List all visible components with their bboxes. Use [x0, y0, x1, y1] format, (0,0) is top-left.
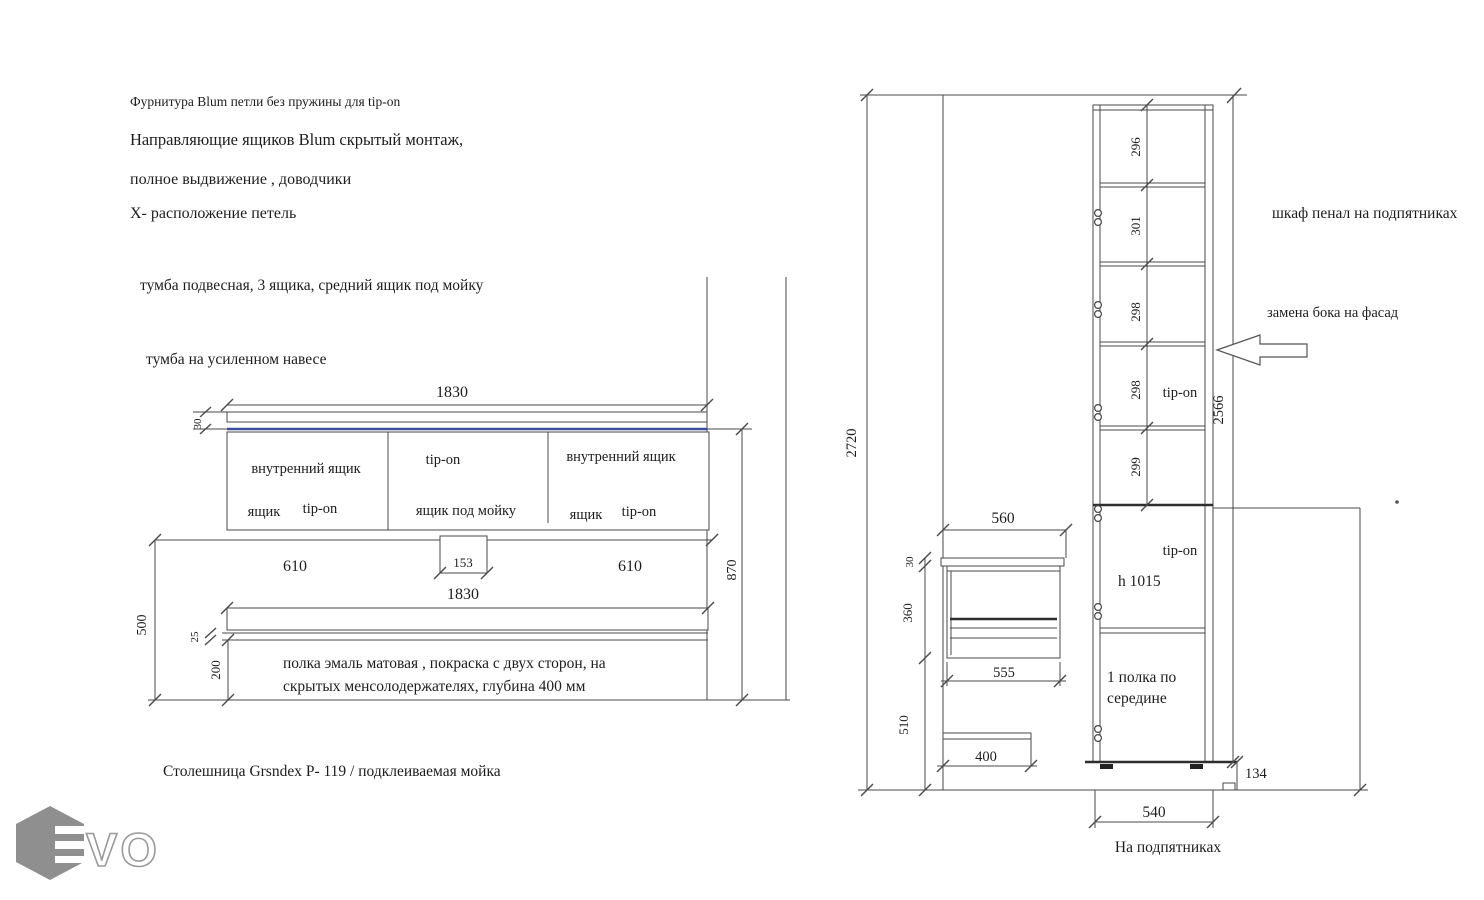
label-tipon-upper: tip-on — [1163, 385, 1198, 401]
left-arrow-icon — [1217, 335, 1307, 365]
dim-section-left: 610 — [283, 558, 307, 575]
note-fullext: полное выдвижение , доводчики — [130, 171, 352, 188]
label-tipon-mid: tip-on — [426, 452, 461, 468]
note-hardware: Фурнитура Blum петли без пружины для tip… — [130, 94, 401, 109]
note-slides: Направляющие ящиков Blum скрытый монтаж, — [130, 130, 463, 149]
dim-total-height: 2720 — [844, 429, 860, 458]
dim-countertop-thickness: 30 — [192, 418, 204, 430]
right-cabinet-title: шкаф пенал на подпятниках — [1272, 205, 1458, 222]
label-tipon-left: tip-on — [303, 501, 338, 517]
dim-section-296: 296 — [1128, 137, 1143, 157]
label-sink-drawer: ящик под мойку — [416, 503, 517, 519]
shelf-front — [227, 608, 708, 630]
upper-unit-top-plate — [941, 558, 1064, 566]
dim-shelf-gap: 200 — [208, 660, 223, 680]
dim-shelf-drop: 500 — [135, 615, 150, 636]
label-middle-shelf-1: 1 полка по — [1107, 669, 1177, 686]
dim-upper-height: 360 — [900, 603, 915, 623]
evo-logo: VO — [16, 806, 160, 880]
left-cabinet-title: тумба подвесная, 3 ящика, средний ящик п… — [140, 277, 484, 294]
dim-sink-drop: 153 — [453, 555, 473, 570]
plinth-foot-left — [1100, 764, 1113, 769]
dim-bottom-width: 1830 — [447, 586, 479, 603]
drawing-canvas: Фурнитура Blum петли без пружины для tip… — [0, 0, 1484, 900]
logo-letters: VO — [86, 823, 160, 876]
base-note: На подпятниках — [1115, 839, 1221, 856]
dim-upper-width: 560 — [991, 510, 1015, 527]
dim-cabinet-height: 2566 — [1211, 396, 1227, 425]
countertop-note: Столешница Grsndex P- 119 / подклеиваема… — [163, 763, 501, 780]
dim-base-width: 540 — [1142, 804, 1166, 821]
dim-base-height: 134 — [1245, 766, 1268, 782]
dim-section-299: 299 — [1128, 457, 1143, 477]
label-tipon-lower: tip-on — [1163, 543, 1198, 559]
dim-shelf-width: 400 — [975, 749, 997, 765]
label-door-height: h 1015 — [1118, 573, 1161, 590]
technical-drawing-page: Фурнитура Blum петли без пружины для tip… — [0, 0, 1484, 900]
shelf-note-2: скрытых менсолодержателях, глубина 400 м… — [283, 678, 586, 695]
left-cabinet-subtitle: тумба на усиленном навесе — [146, 351, 327, 368]
label-inner-drawer-left: внутренний ящик — [251, 461, 361, 477]
right-drawing: 2720 296 301 — [844, 88, 1458, 856]
label-middle-shelf-2: середине — [1107, 690, 1167, 707]
dim-top-width: 1830 — [436, 384, 468, 401]
plinth-foot-right — [1190, 764, 1203, 769]
dim-lower-width: 555 — [993, 665, 1015, 681]
dim-section-301: 301 — [1128, 216, 1143, 236]
dim-section-298b: 298 — [1128, 380, 1143, 400]
shelf-note-1: полка эмаль матовая , покраска с двух ст… — [283, 655, 606, 672]
dim-height-870: 870 — [725, 560, 740, 581]
dim-lower-gap: 510 — [896, 715, 911, 735]
label-drawer-left: ящик — [248, 504, 282, 520]
label-inner-drawer-right: внутренний ящик — [566, 449, 676, 465]
dim-section-right: 610 — [618, 558, 642, 575]
dim-section-298a: 298 — [1128, 302, 1143, 322]
countertop-slab — [227, 412, 707, 422]
note-hinges: Х- расположение петель — [130, 205, 296, 222]
facade-note: замена бока на фасад — [1267, 305, 1399, 321]
plinth-detail — [1223, 783, 1235, 790]
dim-shelf-thickness: 25 — [189, 631, 201, 643]
label-drawer-right: ящик — [570, 507, 604, 523]
label-tipon-right: tip-on — [622, 504, 657, 520]
upper-unit-body — [947, 566, 1060, 658]
dim-top-thickness: 30 — [904, 556, 916, 568]
tall-cabinet-body — [1093, 105, 1213, 762]
ref-dot — [1395, 500, 1399, 504]
